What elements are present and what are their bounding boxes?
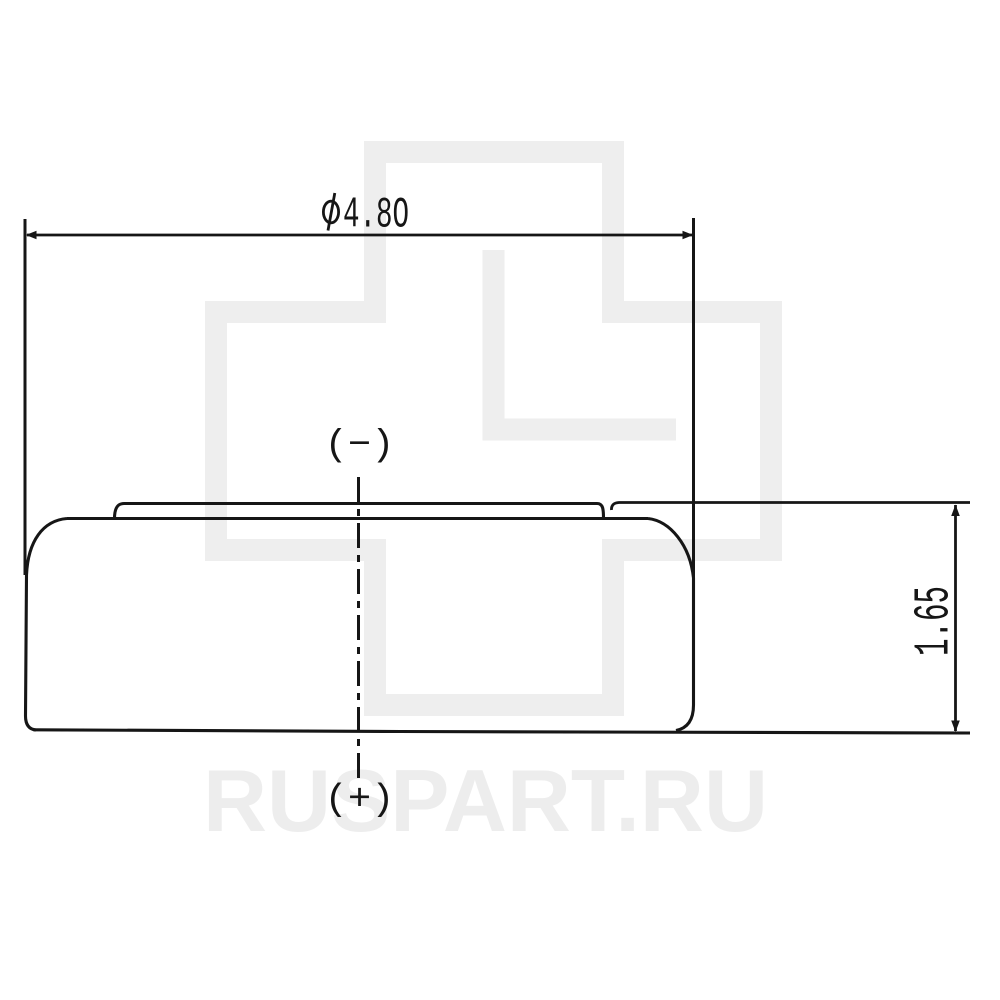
- svg-text:(+): (+): [325, 780, 395, 822]
- svg-text:4.8O: 4.8O: [343, 192, 409, 241]
- svg-text:1.65: 1.65: [907, 586, 963, 656]
- svg-text:(−): (−): [325, 425, 395, 467]
- svg-text:RUSPART.RU: RUSPART.RU: [203, 751, 768, 850]
